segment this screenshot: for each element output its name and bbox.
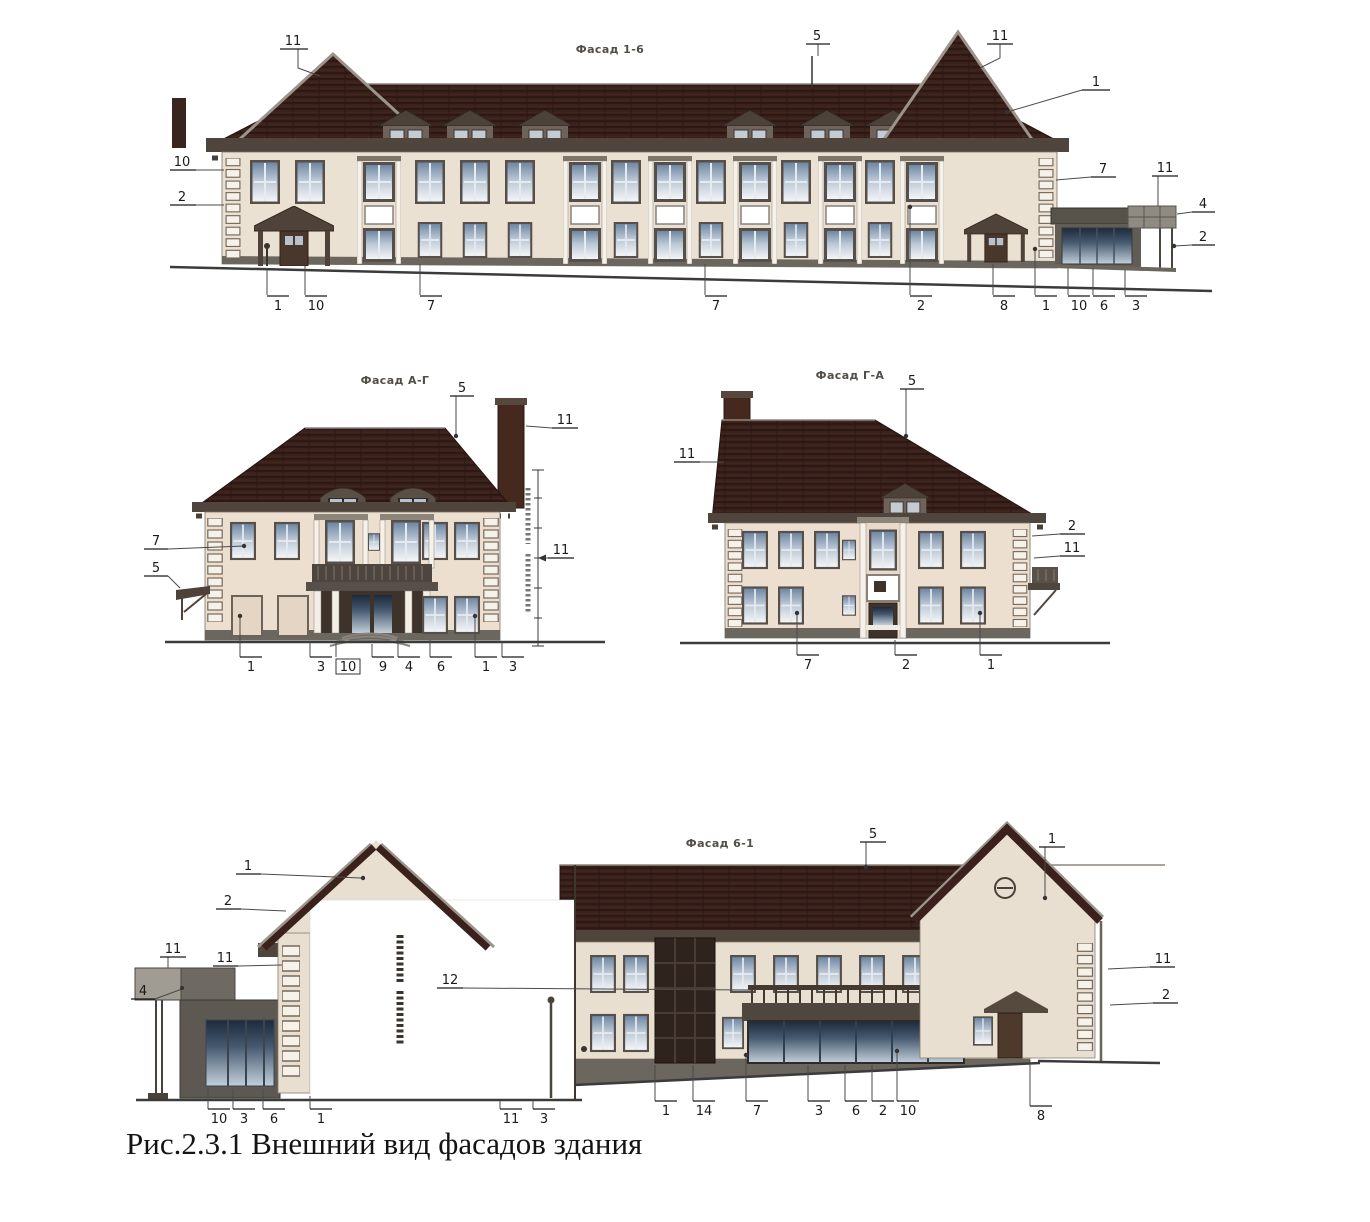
svg-text:7: 7 [753, 1104, 761, 1119]
svg-text:11: 11 [992, 29, 1009, 44]
svg-text:6: 6 [852, 1104, 860, 1119]
svg-text:11: 11 [679, 447, 696, 462]
figure-caption: Рис.2.3.1 Внешний вид фасадов здания [126, 1126, 926, 1162]
left-annex [135, 968, 280, 1099]
svg-text:11: 11 [553, 543, 570, 558]
svg-text:3: 3 [540, 1112, 548, 1127]
svg-text:6: 6 [1100, 299, 1108, 314]
svg-text:10: 10 [340, 660, 357, 675]
svg-text:2: 2 [902, 658, 910, 673]
svg-text:3: 3 [1132, 299, 1140, 314]
svg-text:10: 10 [900, 1104, 917, 1119]
svg-text:6: 6 [437, 660, 445, 675]
building-top [172, 32, 1176, 272]
svg-text:1: 1 [247, 660, 255, 675]
svg-text:6: 6 [270, 1112, 278, 1127]
facade-title: Фасад А-Г [361, 374, 430, 387]
svg-text:5: 5 [813, 29, 821, 44]
svg-text:14: 14 [696, 1104, 713, 1119]
svg-text:10: 10 [308, 299, 325, 314]
chimney [172, 98, 186, 148]
svg-text:3: 3 [240, 1112, 248, 1127]
svg-text:2: 2 [178, 190, 186, 205]
svg-text:2: 2 [1162, 988, 1170, 1003]
svg-text:12: 12 [442, 973, 459, 988]
blank-area [310, 900, 575, 1100]
svg-text:1: 1 [1042, 299, 1050, 314]
quoins [1078, 943, 1093, 1051]
svg-text:1: 1 [317, 1112, 325, 1127]
svg-text:11: 11 [165, 942, 182, 957]
lamp-post [548, 997, 555, 1004]
cornice [206, 138, 1069, 152]
side-balcony [1028, 567, 1060, 615]
svg-text:7: 7 [152, 534, 160, 549]
center-bay [306, 514, 438, 646]
quoins [282, 946, 300, 1076]
svg-text:7: 7 [427, 299, 435, 314]
facade-drawing-1-6: Фасад 1-6 [150, 18, 1250, 318]
svg-text:3: 3 [815, 1104, 823, 1119]
building-a-g [176, 398, 544, 646]
building-g-a [708, 391, 1060, 638]
svg-text:10: 10 [211, 1112, 228, 1127]
svg-text:7: 7 [712, 299, 720, 314]
svg-text:11: 11 [503, 1112, 520, 1127]
svg-text:2: 2 [224, 894, 232, 909]
balcony-slab [306, 582, 438, 591]
quoins [1013, 529, 1027, 627]
quoins [484, 518, 498, 622]
figure-page: Фасад 1-6 [0, 0, 1370, 1222]
svg-text:1: 1 [274, 299, 282, 314]
svg-text:5: 5 [908, 374, 916, 389]
svg-text:11: 11 [1157, 161, 1174, 176]
svg-text:3: 3 [509, 660, 517, 675]
svg-text:2: 2 [879, 1104, 887, 1119]
cornice [192, 502, 516, 512]
stair-glazing [655, 938, 715, 1063]
svg-text:11: 11 [1155, 952, 1172, 967]
facade-title: Фасад 1-6 [576, 43, 644, 56]
svg-text:7: 7 [804, 658, 812, 673]
ground-line [170, 267, 1212, 291]
svg-text:8: 8 [1037, 1109, 1045, 1124]
svg-text:8: 8 [1000, 299, 1008, 314]
quoins [208, 518, 222, 622]
svg-text:11: 11 [217, 951, 234, 966]
door [998, 1013, 1022, 1058]
svg-text:1: 1 [1048, 832, 1056, 847]
stair-bay [857, 517, 909, 638]
facade-drawing-a-g: Фасад А-Г [140, 368, 620, 703]
svg-text:4: 4 [139, 984, 147, 999]
svg-text:5: 5 [152, 561, 160, 576]
svg-text:2: 2 [1068, 519, 1076, 534]
svg-text:1: 1 [662, 1104, 670, 1119]
svg-text:2: 2 [917, 299, 925, 314]
svg-text:7: 7 [1099, 162, 1107, 177]
svg-text:10: 10 [1071, 299, 1088, 314]
building-bottom [135, 823, 1165, 1100]
svg-text:11: 11 [557, 413, 574, 428]
entrance-recess [314, 591, 430, 633]
facade-title: Фасад 6-1 [686, 837, 754, 850]
svg-text:1: 1 [1092, 75, 1100, 90]
facade-drawing-g-a: Фасад Г-А [660, 363, 1120, 700]
lamp-post [264, 243, 270, 249]
svg-text:4: 4 [1199, 197, 1207, 212]
svg-text:1: 1 [244, 859, 252, 874]
svg-text:10: 10 [174, 155, 191, 170]
svg-text:5: 5 [458, 381, 466, 396]
svg-text:9: 9 [379, 660, 387, 675]
svg-text:3: 3 [317, 660, 325, 675]
svg-text:4: 4 [405, 660, 413, 675]
quoins [226, 158, 240, 258]
quoins [728, 529, 742, 627]
svg-text:1: 1 [987, 658, 995, 673]
left-gable [258, 840, 575, 1100]
roof [712, 420, 1042, 520]
facade-drawing-6-1: Фасад 6-1 [118, 813, 1180, 1125]
right-gable [911, 823, 1103, 1061]
svg-text:11: 11 [285, 34, 302, 49]
chimney [498, 402, 524, 508]
svg-text:5: 5 [869, 827, 877, 842]
svg-text:2: 2 [1199, 230, 1207, 245]
svg-text:1: 1 [482, 660, 490, 675]
svg-text:11: 11 [1064, 541, 1081, 556]
annex [1051, 206, 1176, 272]
facade-title: Фасад Г-А [816, 369, 885, 382]
